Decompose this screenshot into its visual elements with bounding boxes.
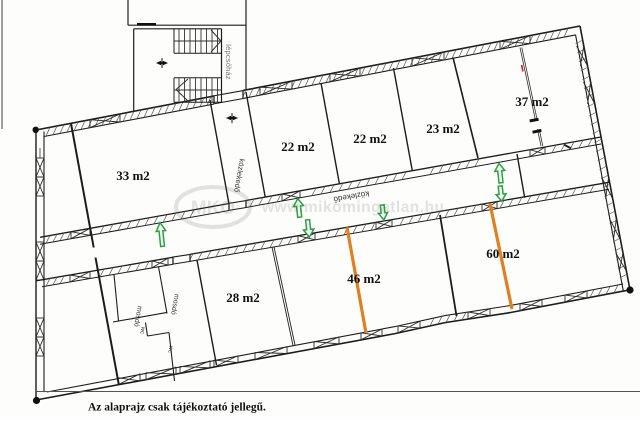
svg-text:Az alaprajz csak tájékoztató j: Az alaprajz csak tájékoztató jellegű.	[88, 402, 266, 414]
svg-text:22 m2: 22 m2	[281, 139, 315, 154]
svg-text:60 m2: 60 m2	[486, 246, 520, 261]
svg-text:lépcsőház: lépcsőház	[224, 44, 233, 80]
svg-text:MKO: MKO	[191, 198, 235, 219]
svg-text:46 m2: 46 m2	[347, 271, 381, 286]
svg-text:23 m2: 23 m2	[426, 121, 460, 136]
svg-text:28 m2: 28 m2	[226, 290, 260, 305]
svg-text:33 m2: 33 m2	[116, 168, 150, 183]
svg-text:37 m2: 37 m2	[515, 94, 549, 109]
svg-text:22 m2: 22 m2	[353, 131, 387, 146]
